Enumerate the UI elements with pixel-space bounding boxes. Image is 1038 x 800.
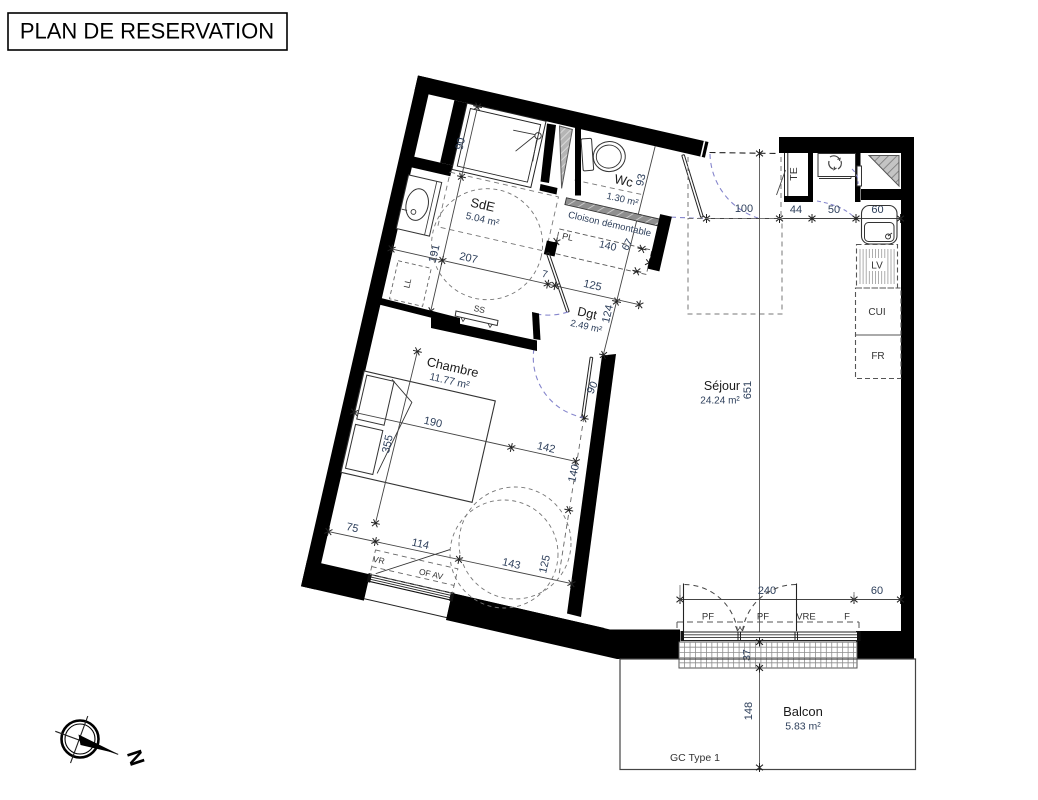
svg-text:143: 143 [501,556,522,572]
svg-text:148: 148 [743,702,755,720]
svg-text:100: 100 [735,203,753,215]
svg-text:60: 60 [871,585,883,597]
svg-text:GC Type 1: GC Type 1 [670,752,720,764]
svg-text:44: 44 [790,204,802,216]
svg-text:TE: TE [788,167,800,180]
svg-text:140: 140 [566,463,582,484]
svg-text:OF AV: OF AV [418,566,444,581]
svg-text:LL: LL [401,277,413,289]
svg-text:1.30 m²: 1.30 m² [605,191,639,209]
svg-text:SS: SS [473,303,487,315]
svg-text:Wc: Wc [613,171,635,190]
svg-text:PF: PF [757,612,769,623]
svg-text:Séjour: Séjour [704,379,740,393]
svg-text:PLAN DE RESERVATION: PLAN DE RESERVATION [20,19,274,44]
svg-text:PL: PL [561,231,574,243]
svg-text:2.49 m²: 2.49 m² [569,318,603,336]
svg-text:651: 651 [742,381,754,399]
svg-text:N: N [122,747,149,769]
svg-text:5.83 m²: 5.83 m² [785,721,821,733]
svg-text:50: 50 [828,204,840,216]
svg-text:125: 125 [582,278,603,294]
svg-text:207: 207 [458,250,479,266]
svg-text:240: 240 [758,585,776,597]
svg-text:75: 75 [345,521,360,535]
svg-text:24.24 m²: 24.24 m² [700,396,740,407]
svg-text:F: F [844,612,850,623]
svg-text:LV: LV [871,261,883,272]
svg-text:90: 90 [454,136,468,151]
svg-text:VRE: VRE [796,612,816,623]
svg-text:5.04 m²: 5.04 m² [465,211,501,229]
svg-text:CUI: CUI [868,307,885,318]
svg-text:140: 140 [598,238,618,254]
svg-text:VR: VR [372,554,386,566]
svg-text:PF: PF [702,612,714,623]
svg-text:124: 124 [600,304,616,325]
svg-text:FR: FR [871,351,884,362]
svg-text:67: 67 [620,237,636,253]
svg-text:Balcon: Balcon [783,704,823,719]
svg-text:7: 7 [541,269,549,281]
svg-text:93: 93 [634,173,648,188]
svg-text:125: 125 [537,554,553,575]
